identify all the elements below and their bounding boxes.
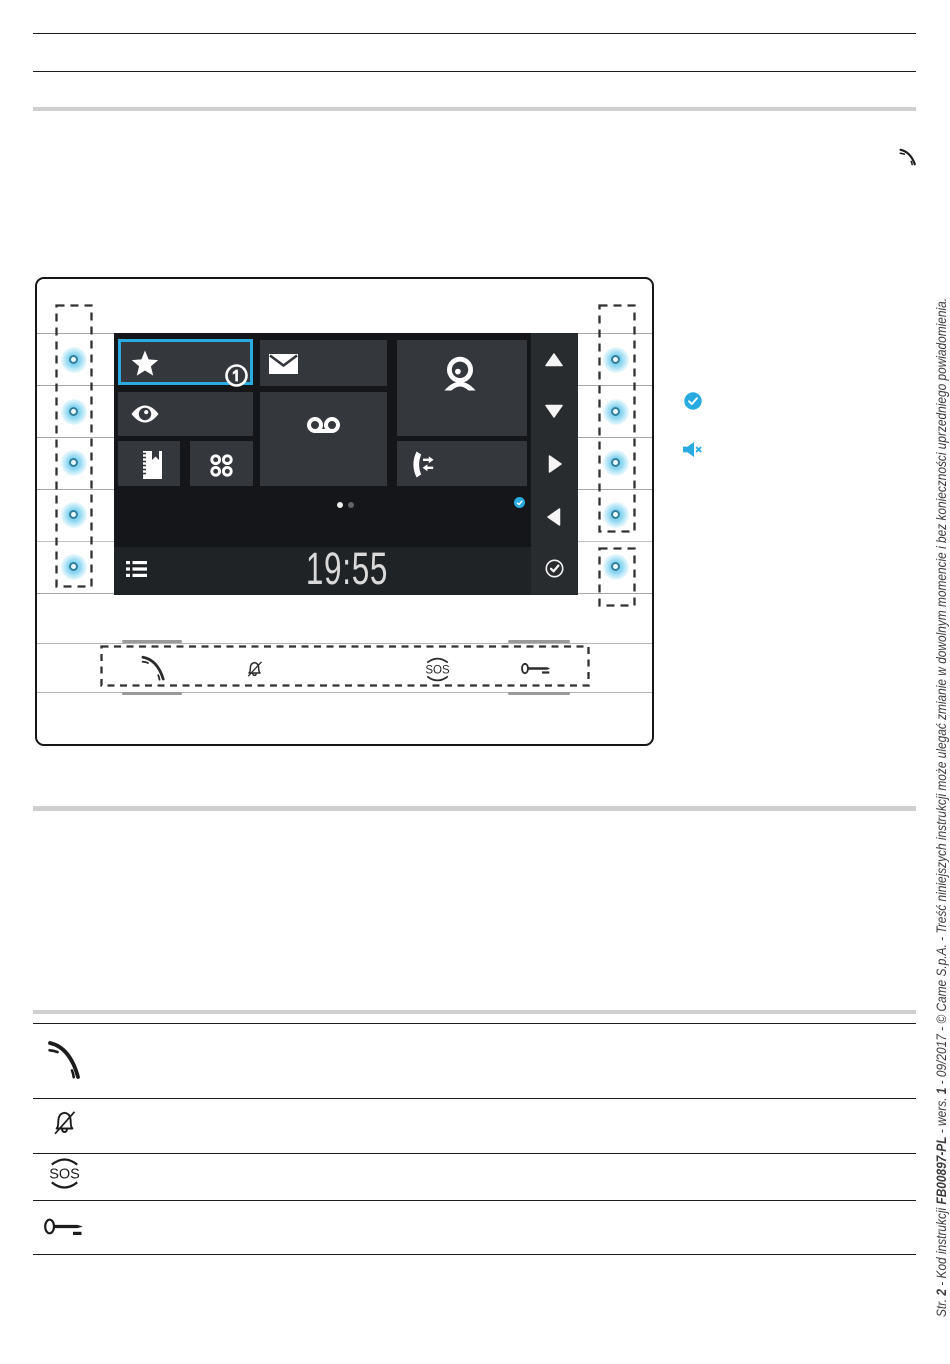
svg-text:SOS: SOS	[425, 665, 450, 677]
svg-text:19:55: 19:55	[306, 545, 388, 592]
svg-text:SOS: SOS	[49, 1167, 80, 1183]
